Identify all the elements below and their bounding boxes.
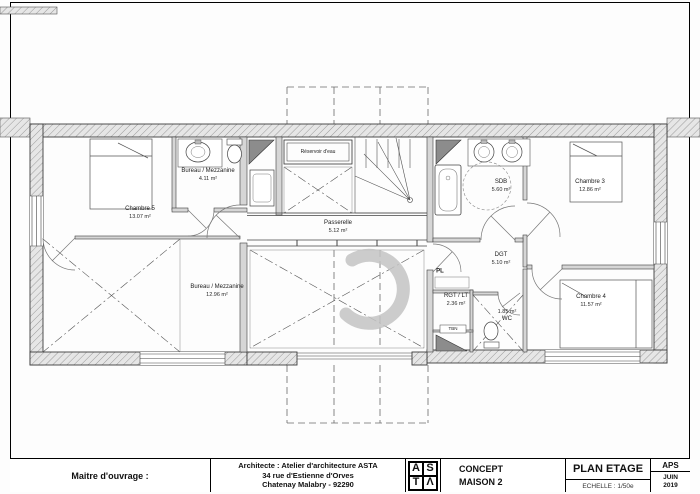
- title-block-architect-cell: Architecte : Atelier d'architecture ASTA…: [210, 459, 405, 492]
- room-area: 11.57 m²: [576, 301, 606, 308]
- client-label: Maitre d'ouvrage :: [71, 471, 148, 481]
- main-staircase: [355, 137, 427, 213]
- room-area: 12.96 m²: [190, 291, 243, 298]
- room-label-chambre5: Chambre 5 13.07 m²: [125, 206, 155, 220]
- title-block-project-cell: CONCEPT MAISON 2: [440, 459, 565, 492]
- sheet-scale: ECHELLE : 1/50e: [566, 479, 650, 492]
- room-label-rgt: RGT / LT 2.36 m²: [444, 293, 468, 307]
- room-name: Passerelle: [324, 220, 352, 228]
- room-label-tbn: TBN: [449, 326, 458, 332]
- date-month: JUIN: [663, 474, 678, 482]
- room-name: Bureau / Mezzanine: [190, 284, 243, 292]
- room-name: Chambre 4: [576, 294, 606, 302]
- date-label: JUIN 2019: [663, 472, 678, 492]
- room-name: Réservoir d'eau: [301, 149, 336, 155]
- architect-line: Chatenay Malabry - 92290: [262, 480, 354, 490]
- title-block-client-cell: Maitre d'ouvrage :: [10, 459, 210, 492]
- room-name: DGT: [492, 252, 511, 260]
- sdb-fixtures: [435, 139, 530, 215]
- spiral-stair-void: [346, 255, 403, 323]
- room-label-chambre3: Chambre 3 12.86 m²: [575, 179, 605, 193]
- room-area: 2.36 m²: [444, 300, 468, 307]
- room-name: RGT / LT: [444, 293, 468, 301]
- room-area: 5.10 m²: [492, 259, 511, 266]
- room-area: 1.85 m²: [498, 309, 517, 316]
- room-area: 5.60 m²: [492, 186, 511, 193]
- logo-letter: A: [409, 462, 423, 476]
- title-block-logo-cell: A S T Λ: [405, 459, 440, 492]
- room-label-sdb: SDB 5.60 m²: [492, 179, 511, 193]
- room-area: 4.11 m²: [181, 175, 234, 182]
- phase-label: APS: [651, 459, 690, 472]
- room-area: 5.12 m²: [324, 227, 352, 234]
- sheet-title: PLAN ETAGE: [566, 459, 650, 479]
- room-area: 13.07 m²: [125, 213, 155, 220]
- logo-letter: T: [409, 476, 423, 490]
- project-line: CONCEPT: [459, 463, 503, 475]
- room-label-reservoir: Réservoir d'eau: [301, 149, 336, 155]
- wc-rgt-fixtures: [435, 277, 499, 351]
- room-name: Chambre 5: [125, 206, 155, 214]
- asta-logo: A S T Λ: [408, 461, 438, 491]
- title-block: Maitre d'ouvrage : Architecte : Atelier …: [10, 458, 690, 492]
- room-label-chambre4: Chambre 4 11.57 m²: [576, 294, 606, 308]
- exterior-context-walls: [0, 7, 700, 137]
- architect-line: Architecte : Atelier d'architecture ASTA: [238, 461, 377, 471]
- project-line: MAISON 2: [459, 476, 503, 488]
- logo-letter: S: [423, 462, 437, 476]
- logo-letter: Λ: [423, 476, 437, 490]
- date-year: 2019: [663, 482, 677, 490]
- room-label-passerelle: Passerelle 5.12 m²: [324, 220, 352, 234]
- room-name: Chambre 3: [575, 179, 605, 187]
- room-label-bureau-mezzanine-small: Bureau / Mezzanine 4.11 m²: [181, 168, 234, 182]
- room-name: PL: [436, 268, 444, 276]
- architect-line: 34 rue d'Estienne d'Orves: [262, 471, 354, 481]
- room-name: SDB: [492, 179, 511, 187]
- title-block-phase-cell: APS JUIN 2019: [650, 459, 690, 492]
- room-name: Bureau / Mezzanine: [181, 168, 234, 176]
- room-label-pl: PL: [436, 268, 444, 276]
- room-name: TBN: [449, 326, 458, 332]
- floor-plan-drawing: [0, 0, 700, 494]
- room-label-bureau-mezzanine-large: Bureau / Mezzanine 12.96 m²: [190, 284, 243, 298]
- room-name: WC: [498, 316, 517, 324]
- door-swings: [43, 203, 562, 315]
- room-label-dgt: DGT 5.10 m²: [492, 252, 511, 266]
- room-label-wc: 1.85 m² WC: [498, 309, 517, 323]
- room-area: 12.86 m²: [575, 186, 605, 193]
- title-block-sheet-cell: PLAN ETAGE ECHELLE : 1/50e: [565, 459, 650, 492]
